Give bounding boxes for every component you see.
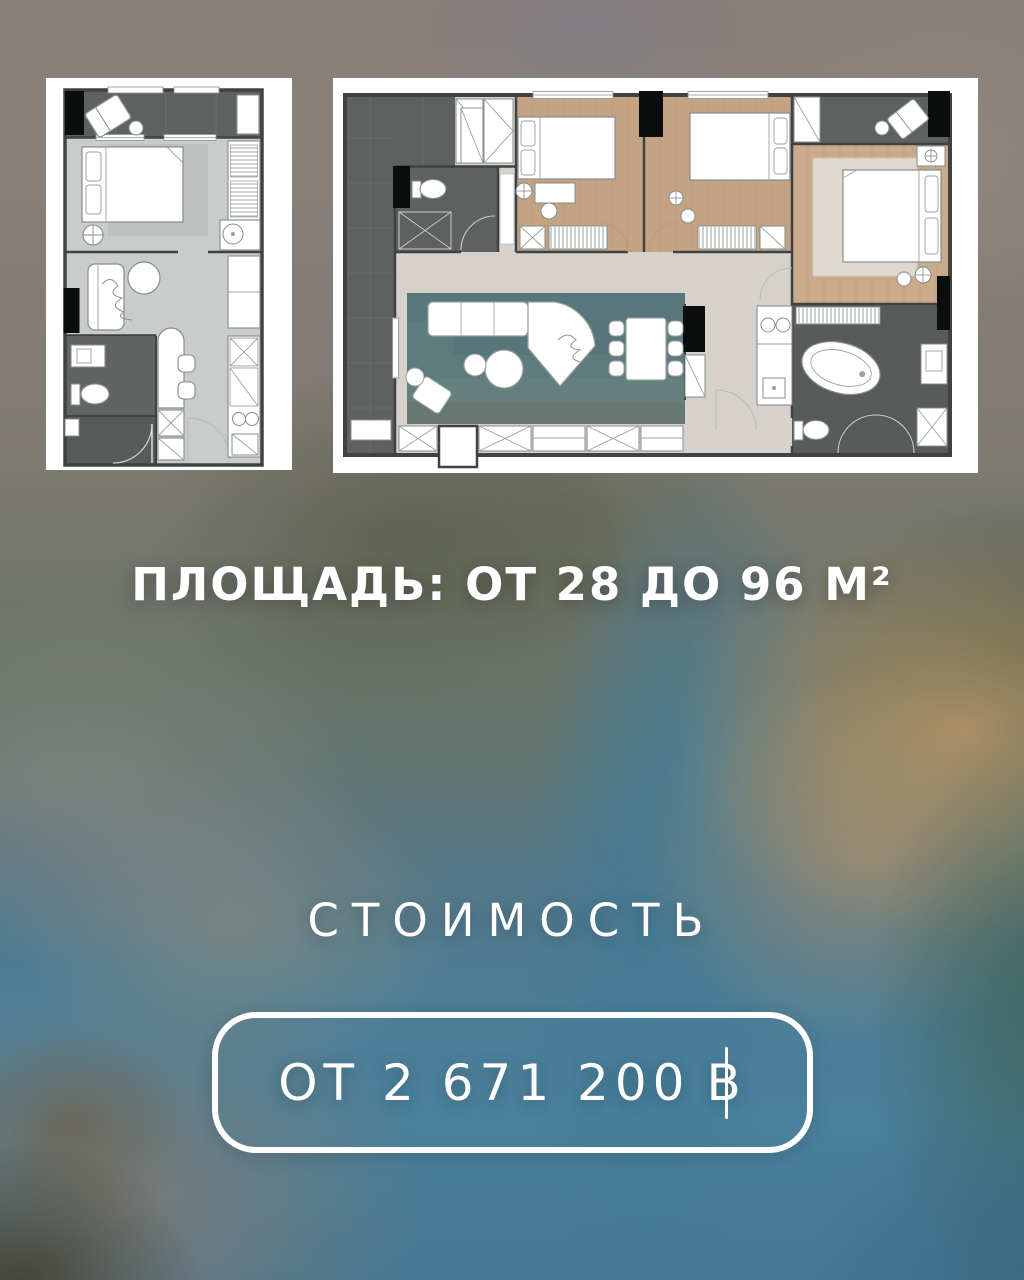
chair (609, 341, 624, 356)
side-table (83, 225, 103, 245)
cabinet (685, 355, 705, 397)
stove-burner (761, 318, 775, 332)
vanity-counter (796, 307, 880, 324)
window-marker (639, 91, 663, 137)
toilet (71, 384, 109, 405)
price-section-title: СТОИМОСТЬ (0, 894, 1024, 947)
window-marker (65, 91, 84, 135)
wardrobe-1 (520, 226, 607, 249)
bed-1 (518, 117, 615, 179)
window-marker (928, 91, 950, 137)
bathroom-sink (921, 344, 947, 384)
balcony-planter (237, 95, 259, 134)
chair (609, 361, 624, 376)
coffee-table (464, 354, 486, 376)
chair (609, 321, 624, 336)
bar-stool (178, 382, 195, 399)
coffee-table (485, 350, 523, 388)
floorplan-card-studio (46, 78, 292, 470)
balcony-planter (351, 420, 391, 440)
bathroom-guest (395, 166, 498, 252)
price-value: ОТ 2 671 200 (278, 1054, 690, 1112)
chair (668, 321, 683, 336)
promo-slide: ПЛОЩАДЬ: ОТ 28 ДО 96 М² СТОИМОСТЬ ОТ 2 6… (0, 0, 1024, 1280)
chair (668, 341, 683, 356)
closet (794, 97, 820, 142)
baht-currency-icon: B (706, 1054, 746, 1112)
bed (82, 147, 183, 222)
price-button[interactable]: ОТ 2 671 200B (212, 1012, 813, 1153)
floorplan-studio (46, 78, 292, 470)
floorplan-three-bedroom (333, 78, 978, 473)
area-label: ПЛОЩАДЬ: ОТ 28 ДО 96 М² (0, 558, 1024, 611)
wardrobe-column (228, 141, 260, 220)
toilet (794, 421, 829, 441)
master-bed (843, 170, 941, 262)
stove-burner (776, 318, 790, 332)
floorplan-card-three-bedroom (333, 78, 978, 473)
bed-2 (690, 113, 790, 180)
kitchen-cabinets (228, 336, 260, 457)
wardrobe-2 (698, 226, 785, 249)
wardrobe (228, 256, 260, 328)
chair (668, 361, 683, 376)
bar-stool (178, 355, 195, 372)
vanity-sink (71, 345, 105, 367)
entry-vestibule (439, 426, 477, 467)
window-marker (64, 288, 80, 333)
window-marker (393, 166, 410, 208)
coffee-table (128, 262, 160, 294)
tv-panel (683, 306, 705, 352)
shelf (65, 419, 79, 436)
closet (917, 408, 947, 446)
window-marker (937, 276, 950, 330)
nightstand (917, 146, 945, 166)
dining-table (609, 318, 683, 380)
kitchen-counter (757, 306, 792, 405)
sink-counter (220, 220, 260, 250)
stove-burner (246, 413, 259, 426)
toilet (412, 180, 446, 199)
stove-burner (233, 413, 246, 426)
